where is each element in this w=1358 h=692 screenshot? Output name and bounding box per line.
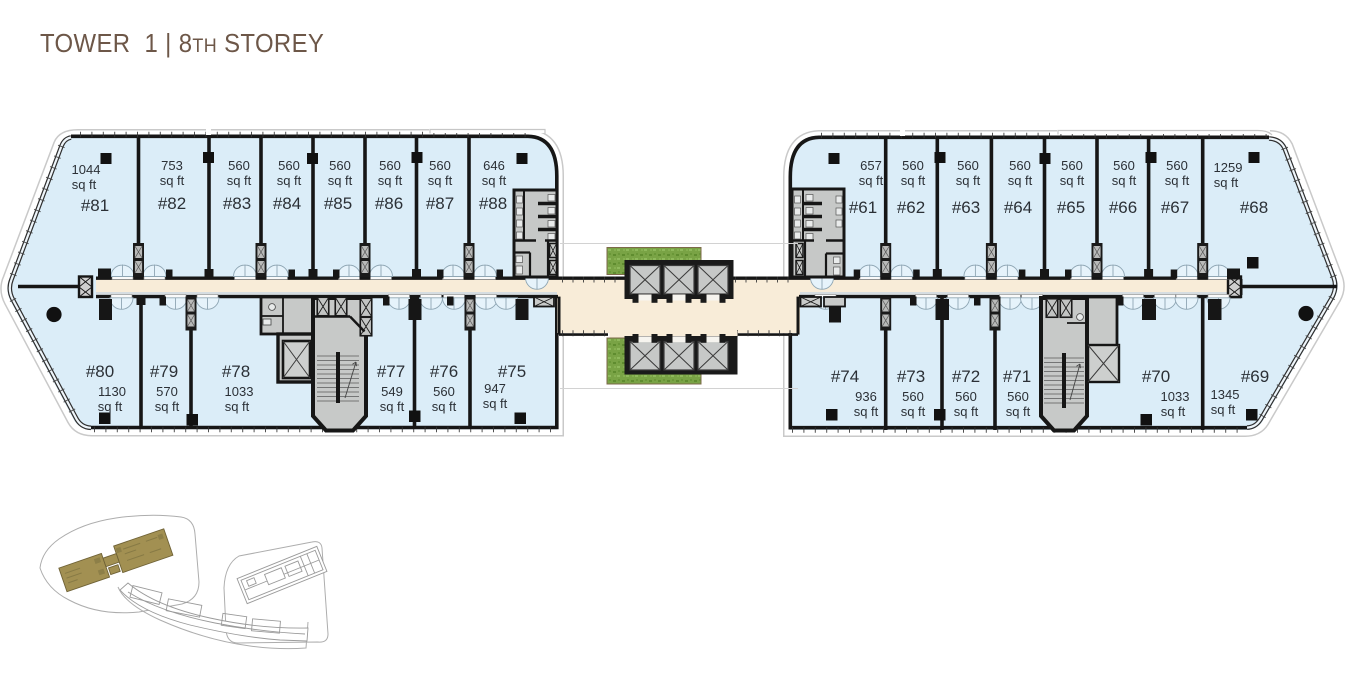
svg-text:#68: #68 <box>1240 198 1268 217</box>
svg-text:sq ft: sq ft <box>1060 173 1085 188</box>
svg-text:#77: #77 <box>377 362 405 381</box>
svg-text:sq ft: sq ft <box>1006 404 1031 419</box>
svg-text:#84: #84 <box>273 194 301 213</box>
svg-text:#85: #85 <box>324 194 352 213</box>
svg-text:sq ft: sq ft <box>901 404 926 419</box>
svg-text:#71: #71 <box>1003 367 1031 386</box>
svg-text:#63: #63 <box>952 198 980 217</box>
svg-text:sq ft: sq ft <box>1211 402 1236 417</box>
svg-text:sq ft: sq ft <box>227 173 252 188</box>
svg-text:sq ft: sq ft <box>859 173 884 188</box>
svg-text:#79: #79 <box>150 362 178 381</box>
svg-text:560: 560 <box>1166 158 1188 173</box>
svg-text:947: 947 <box>484 381 506 396</box>
svg-text:sq ft: sq ft <box>98 399 123 414</box>
svg-text:#64: #64 <box>1004 198 1032 217</box>
svg-text:sq ft: sq ft <box>954 404 979 419</box>
svg-text:sq ft: sq ft <box>428 173 453 188</box>
svg-text:sq ft: sq ft <box>1161 404 1186 419</box>
svg-text:#82: #82 <box>158 194 186 213</box>
svg-text:560: 560 <box>902 158 924 173</box>
svg-text:560: 560 <box>278 158 300 173</box>
svg-text:1044: 1044 <box>72 162 101 177</box>
svg-text:570: 570 <box>156 384 178 399</box>
svg-text:#62: #62 <box>897 198 925 217</box>
svg-text:sq ft: sq ft <box>956 173 981 188</box>
svg-text:sq ft: sq ft <box>225 399 250 414</box>
svg-text:#70: #70 <box>1142 367 1170 386</box>
svg-text:sq ft: sq ft <box>328 173 353 188</box>
svg-text:657: 657 <box>860 158 882 173</box>
svg-text:1345: 1345 <box>1211 387 1240 402</box>
svg-text:#74: #74 <box>831 367 859 386</box>
svg-text:560: 560 <box>955 389 977 404</box>
svg-text:1033: 1033 <box>1161 389 1190 404</box>
svg-text:#66: #66 <box>1109 198 1137 217</box>
svg-text:560: 560 <box>429 158 451 173</box>
svg-text:#87: #87 <box>426 194 454 213</box>
svg-text:560: 560 <box>1113 158 1135 173</box>
svg-text:sq ft: sq ft <box>378 173 403 188</box>
svg-text:#69: #69 <box>1241 367 1269 386</box>
svg-text:sq ft: sq ft <box>1214 175 1239 190</box>
svg-text:#80: #80 <box>86 362 114 381</box>
svg-text:#65: #65 <box>1057 198 1085 217</box>
svg-text:sq ft: sq ft <box>160 173 185 188</box>
svg-text:560: 560 <box>1007 389 1029 404</box>
svg-text:549: 549 <box>381 384 403 399</box>
svg-text:936: 936 <box>855 389 877 404</box>
svg-text:#78: #78 <box>222 362 250 381</box>
svg-text:sq ft: sq ft <box>1008 173 1033 188</box>
svg-text:753: 753 <box>161 158 183 173</box>
svg-text:1033: 1033 <box>225 384 254 399</box>
svg-text:#88: #88 <box>479 194 507 213</box>
svg-text:#81: #81 <box>81 196 109 215</box>
svg-text:sq ft: sq ft <box>854 404 879 419</box>
svg-text:646: 646 <box>483 158 505 173</box>
svg-text:sq ft: sq ft <box>277 173 302 188</box>
svg-text:560: 560 <box>902 389 924 404</box>
svg-text:sq ft: sq ft <box>1165 173 1190 188</box>
svg-text:sq ft: sq ft <box>1112 173 1137 188</box>
svg-text:1259: 1259 <box>1214 160 1243 175</box>
svg-text:560: 560 <box>1009 158 1031 173</box>
svg-text:560: 560 <box>1061 158 1083 173</box>
svg-text:sq ft: sq ft <box>432 399 457 414</box>
svg-text:sq ft: sq ft <box>155 399 180 414</box>
svg-text:#73: #73 <box>897 367 925 386</box>
svg-text:#67: #67 <box>1161 198 1189 217</box>
svg-text:1130: 1130 <box>98 384 126 399</box>
svg-text:sq ft: sq ft <box>380 399 405 414</box>
svg-text:560: 560 <box>228 158 250 173</box>
svg-text:#76: #76 <box>430 362 458 381</box>
svg-text:sq ft: sq ft <box>482 173 507 188</box>
svg-text:#75: #75 <box>498 362 526 381</box>
svg-text:#61: #61 <box>849 198 877 217</box>
svg-text:560: 560 <box>379 158 401 173</box>
svg-text:#83: #83 <box>223 194 251 213</box>
svg-text:sq ft: sq ft <box>901 173 926 188</box>
svg-text:sq ft: sq ft <box>72 177 97 192</box>
svg-text:560: 560 <box>433 384 455 399</box>
svg-text:sq ft: sq ft <box>483 396 508 411</box>
svg-text:#72: #72 <box>952 367 980 386</box>
svg-text:#86: #86 <box>375 194 403 213</box>
svg-text:560: 560 <box>957 158 979 173</box>
svg-text:560: 560 <box>329 158 351 173</box>
